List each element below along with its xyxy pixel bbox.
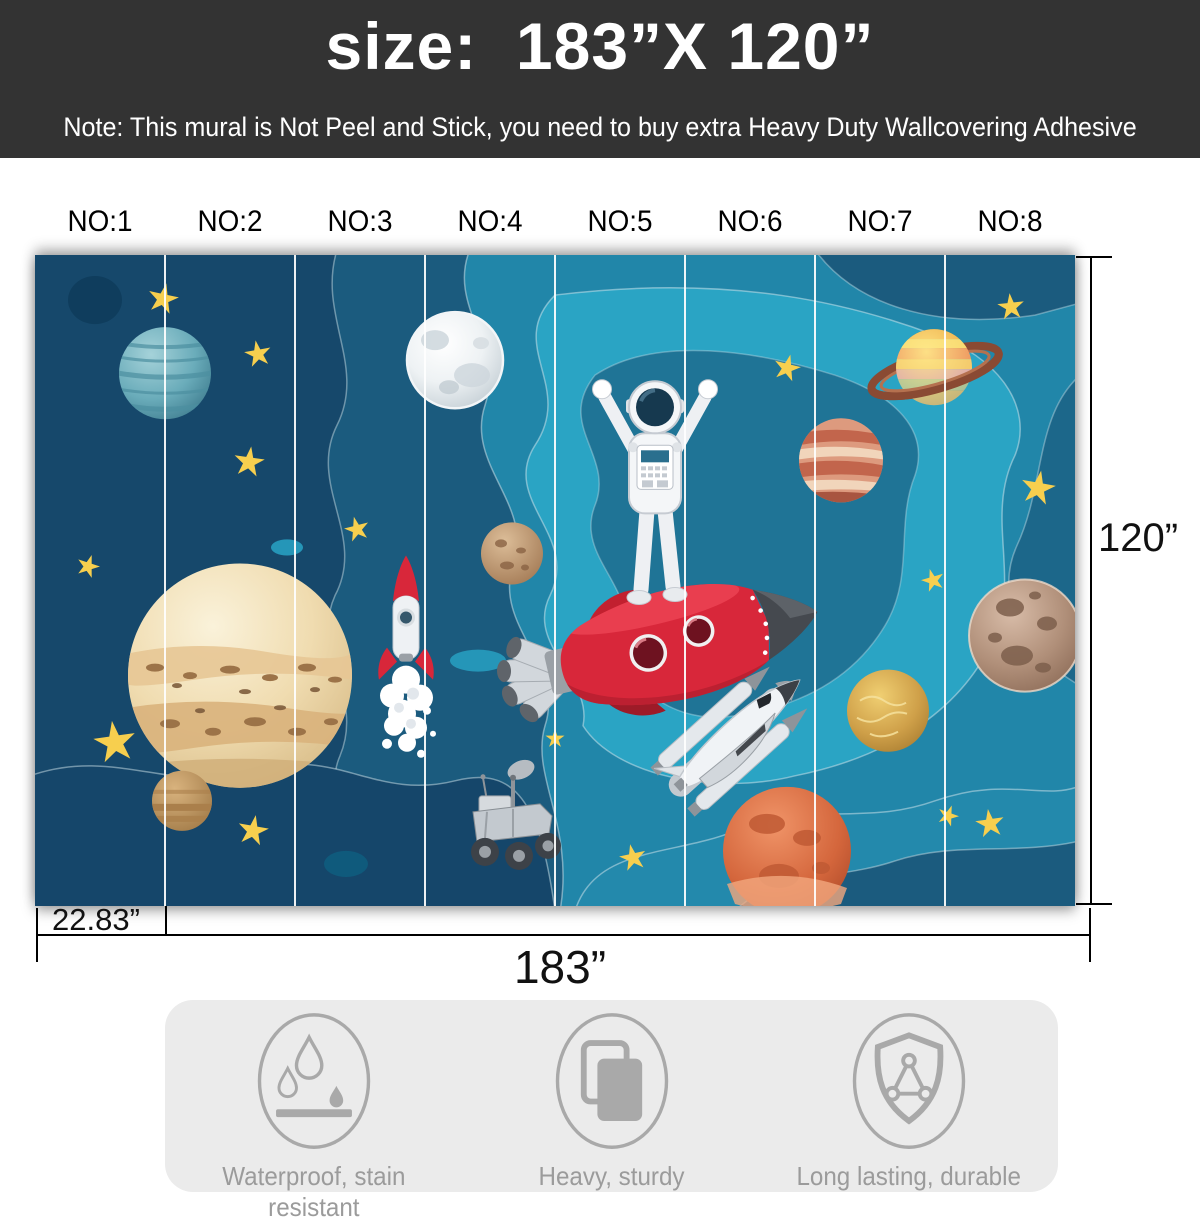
feature-heavy: Heavy, sturdy	[463, 1010, 761, 1192]
planet-gold	[847, 670, 929, 752]
feature-waterproof: Waterproof, stain resistant	[165, 1010, 463, 1223]
total-width-label: 183”	[410, 940, 710, 994]
height-dimension-label: 120”	[1098, 516, 1178, 561]
feature-label: Waterproof, stain resistant	[165, 1161, 463, 1223]
feature-label: Heavy, sturdy	[463, 1161, 761, 1192]
size-title: size: 183”X 120”	[0, 8, 1200, 84]
planet-small-striped	[152, 771, 212, 831]
planet-rocky	[969, 579, 1075, 691]
waterproof-icon	[249, 1143, 379, 1160]
panel-label-4: NO:4	[425, 205, 555, 245]
panel-label-6: NO:6	[685, 205, 815, 245]
panel-label-8: NO:8	[945, 205, 1075, 245]
stacked-boards-icon	[547, 1143, 677, 1160]
planet-large-tan	[126, 563, 354, 787]
panel-label-row: NO:1 NO:2 NO:3 NO:4 NO:5 NO:6 NO:7 NO:8	[35, 205, 1075, 245]
width-dimension-line	[36, 934, 1091, 936]
feature-card: Waterproof, stain resistant Heavy, sturd…	[165, 1000, 1058, 1192]
height-dimension-line	[1090, 257, 1092, 904]
feature-label: Long lasting, durable	[760, 1161, 1058, 1192]
panel-width-tick	[165, 906, 167, 936]
panel-label-7: NO:7	[815, 205, 945, 245]
space-mural-image	[35, 255, 1075, 906]
feature-durable: Long lasting, durable	[760, 1010, 1058, 1192]
planet-small-brown	[481, 522, 543, 584]
planet-moon	[407, 312, 503, 408]
panel-label-5: NO:5	[555, 205, 685, 245]
height-dimension-tick-top	[1076, 256, 1112, 258]
height-dimension-tick-bottom	[1076, 903, 1112, 905]
panel-label-2: NO:2	[165, 205, 295, 245]
adhesive-note: Note: This mural is Not Peel and Stick, …	[0, 112, 1200, 143]
panel-label-3: NO:3	[295, 205, 425, 245]
width-dimension-tick-right	[1089, 908, 1091, 962]
panel-width-label: 22.83”	[52, 902, 140, 938]
shield-icon	[844, 1143, 974, 1160]
panel-label-1: NO:1	[35, 205, 165, 245]
width-dimension-tick-left	[36, 908, 38, 962]
header-banner: size: 183”X 120” Note: This mural is Not…	[0, 0, 1200, 158]
